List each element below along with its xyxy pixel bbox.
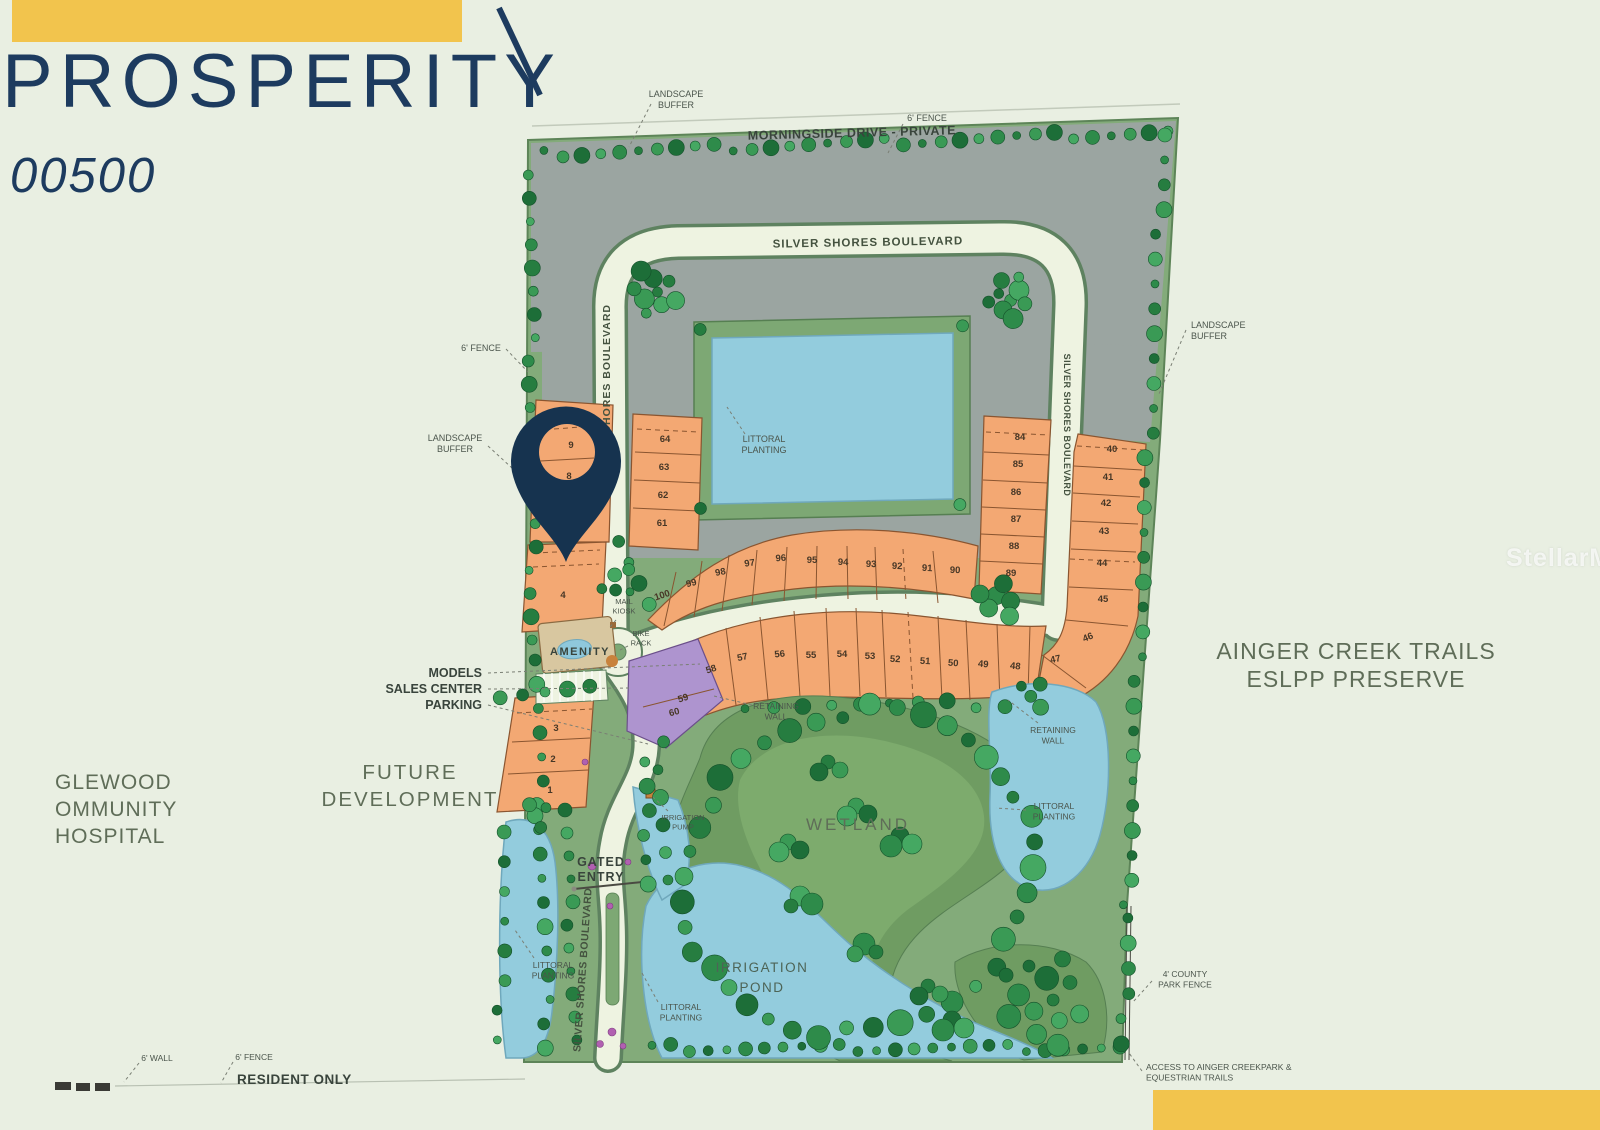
tree-icon [889, 700, 905, 716]
map-label-preserve: AINGER CREEK TRAILSESLPP PRESERVE [1216, 638, 1495, 692]
map-label-bike-rack: BIKERACK [631, 629, 652, 648]
tree-icon [670, 890, 694, 914]
tree-icon [533, 704, 543, 714]
flower-shrub-icon [625, 859, 631, 865]
tree-icon [859, 693, 881, 715]
tree-icon [493, 1036, 501, 1044]
tree-icon [1147, 427, 1159, 439]
tree-icon [1150, 404, 1158, 412]
tree-icon [561, 827, 573, 839]
map-label-access-trails: ACCESS TO AINGER CREEKPARK &EQUESTRIAN T… [1146, 1062, 1292, 1083]
tree-icon [1063, 976, 1077, 990]
tree-icon [610, 584, 622, 596]
tree-icon [538, 897, 550, 909]
tree-icon [1139, 653, 1147, 661]
tree-icon [664, 1037, 678, 1051]
map-label-models: MODELS [429, 666, 482, 680]
tree-icon [739, 1042, 753, 1056]
tree-icon [541, 803, 551, 813]
tree-icon [1025, 1002, 1043, 1020]
tree-icon [583, 679, 597, 693]
tree-icon [992, 768, 1010, 786]
lot-number-93: 93 [866, 559, 877, 570]
lot-number-1: 1 [547, 785, 553, 796]
tree-icon [1113, 1036, 1129, 1052]
tree-icon [1107, 132, 1115, 140]
tree-icon [1149, 354, 1159, 364]
map-label-littoral-planting-n: LITTORALPLANTING [741, 434, 786, 455]
tree-icon [1013, 132, 1021, 140]
tree-icon [695, 502, 707, 514]
tree-icon [928, 1043, 938, 1053]
tree-icon [1138, 602, 1148, 612]
tree-icon [529, 654, 541, 666]
tree-icon [497, 825, 511, 839]
tree-icon [1137, 501, 1151, 515]
tree-icon [546, 995, 554, 1003]
lot-number-45: 45 [1098, 594, 1109, 605]
tree-icon [863, 1017, 883, 1037]
lot-number-85: 85 [1013, 459, 1024, 470]
tree-icon [690, 141, 700, 151]
tree-icon [566, 895, 580, 909]
map-label-landscape-buffer-e: LANDSCAPEBUFFER [1191, 320, 1246, 341]
tree-icon [999, 968, 1013, 982]
tree-icon [631, 261, 651, 281]
flower-shrub-icon [620, 1043, 626, 1049]
tree-icon [1135, 574, 1151, 590]
map-label-littoral-planting-sw: LITTORALPLANTING [532, 960, 575, 981]
tree-icon [1124, 128, 1136, 140]
tree-icon [663, 875, 673, 885]
tree-icon [675, 867, 693, 885]
tree-icon [729, 147, 737, 155]
tree-icon [1151, 229, 1161, 239]
tree-icon [1027, 1024, 1047, 1044]
tree-icon [736, 994, 758, 1016]
map-label-amenity: AMENITY [550, 646, 610, 658]
tree-icon [501, 917, 509, 925]
tree-icon [769, 842, 789, 862]
tree-icon [932, 986, 948, 1002]
tree-icon [631, 575, 647, 591]
mail-kiosk-structure [610, 622, 616, 628]
lot-number-41: 41 [1103, 472, 1114, 483]
tree-icon [648, 1041, 656, 1049]
tree-icon [1033, 677, 1047, 691]
tree-icon [1126, 749, 1140, 763]
lot-number-88: 88 [1009, 541, 1020, 552]
tree-icon [542, 946, 552, 956]
tree-icon [1001, 607, 1019, 625]
tree-icon [683, 1046, 695, 1058]
lot-number-92: 92 [892, 561, 903, 573]
tree-icon [684, 845, 696, 857]
tree-icon [971, 585, 989, 603]
site-map: LANDSCAPEBUFFERMORNINGSIDE DRIVE - PRIVA… [0, 0, 1600, 1130]
map-label-landscape-buffer-nw: LANDSCAPEBUFFER [649, 89, 704, 110]
tree-icon [653, 789, 669, 805]
tree-icon [613, 535, 625, 547]
lot-number-9: 9 [568, 440, 573, 451]
lot-number-63: 63 [659, 462, 670, 473]
tree-icon [558, 803, 572, 817]
tree-icon [994, 273, 1010, 289]
lot-number-98: 98 [714, 566, 726, 579]
tree-icon [908, 1043, 920, 1055]
tree-icon [597, 584, 607, 594]
lot-number-97: 97 [744, 557, 756, 569]
tree-icon [538, 874, 546, 882]
tree-icon [663, 275, 675, 287]
tree-icon [537, 919, 553, 935]
map-label-sales-center: SALES CENTER [385, 682, 482, 696]
tree-icon [810, 763, 828, 781]
tree-icon [1147, 326, 1163, 342]
lot-number-53: 53 [865, 651, 876, 662]
tree-icon [1123, 988, 1135, 1000]
tree-icon [525, 403, 535, 413]
map-label-hospital: GLEWOODOMMUNITYHOSPITAL [55, 771, 177, 848]
tree-icon [525, 239, 537, 251]
tree-icon [1158, 128, 1172, 142]
tree-icon [1078, 1044, 1088, 1054]
tree-icon [910, 987, 928, 1005]
tree-icon [668, 140, 684, 156]
bottom-accent-bar [1153, 1090, 1600, 1130]
tree-icon [1003, 309, 1023, 329]
tree-icon [533, 847, 547, 861]
lot-number-90: 90 [950, 565, 961, 576]
lot-number-56: 56 [774, 648, 786, 660]
tree-icon [1030, 128, 1042, 140]
tree-icon [1071, 1005, 1089, 1023]
county-park-fence-line [1129, 906, 1131, 1060]
tree-icon [961, 733, 975, 747]
tree-icon [492, 1005, 502, 1015]
tree-icon [869, 945, 883, 959]
tree-icon [522, 355, 534, 367]
tree-icon [559, 681, 575, 697]
tree-icon [567, 875, 575, 883]
tree-icon [1069, 134, 1079, 144]
tree-icon [1127, 800, 1139, 812]
tree-icon [527, 308, 541, 322]
tree-icon [798, 1042, 806, 1050]
tree-icon [521, 376, 537, 392]
tree-icon [660, 847, 672, 859]
tree-icon [608, 568, 622, 582]
leader-line-county-park-fence [1133, 981, 1152, 1002]
tree-icon [596, 149, 606, 159]
tree-icon [801, 893, 823, 915]
map-label-fence-s: 6' FENCE [235, 1052, 273, 1062]
tree-icon [678, 920, 692, 934]
tree-icon [758, 736, 772, 750]
tree-icon [1014, 272, 1024, 282]
tree-icon [639, 778, 655, 794]
tree-icon [638, 829, 650, 841]
lot-number-89: 89 [1006, 568, 1017, 579]
lot-number-42: 42 [1101, 498, 1112, 509]
map-label-resident-only: RESIDENT ONLY [237, 1072, 352, 1087]
lot-number-64: 64 [660, 434, 671, 445]
tree-icon [957, 320, 969, 332]
lot-number-87: 87 [1011, 514, 1022, 525]
map-label-fence-ne: 6' FENCE [907, 113, 947, 123]
tree-icon [706, 797, 722, 813]
tree-icon [1035, 966, 1059, 990]
tree-icon [762, 1013, 774, 1025]
tree-icon [1086, 130, 1100, 144]
tree-icon [983, 296, 995, 308]
tree-icon [853, 1047, 863, 1057]
tree-icon [954, 499, 966, 511]
tree-icon [1129, 726, 1139, 736]
lot-number-96: 96 [775, 553, 786, 565]
tree-icon [525, 566, 533, 574]
tree-icon [1007, 791, 1019, 803]
tree-icon [1161, 156, 1169, 164]
tree-icon [526, 218, 534, 226]
tree-icon [741, 705, 749, 713]
tree-icon [1128, 675, 1140, 687]
lot-number-3: 3 [553, 723, 558, 734]
map-label-future-development: FUTUREDEVELOPMENT [322, 761, 499, 811]
tree-icon [531, 334, 539, 342]
tree-icon [557, 151, 569, 163]
tree-icon [778, 719, 802, 743]
tree-icon [1018, 297, 1032, 311]
map-label-gated-entry: GATEDENTRY [577, 855, 625, 884]
flower-shrub-icon [582, 759, 588, 765]
map-label-parking: PARKING [425, 698, 482, 712]
east-pond [989, 684, 1109, 891]
tree-icon [832, 762, 848, 778]
tree-icon [888, 1043, 902, 1057]
tree-icon [1022, 1048, 1030, 1056]
leader-line-fence-s [221, 1062, 233, 1083]
flower-shrub-icon [597, 1041, 604, 1048]
map-label-littoral-planting-s: LITTORALPLANTING [660, 1002, 703, 1023]
tree-icon [561, 919, 573, 931]
tree-icon [499, 975, 511, 987]
tree-icon [1156, 202, 1172, 218]
tree-icon [527, 635, 537, 645]
tree-icon [1126, 698, 1142, 714]
tree-icon [833, 1038, 845, 1050]
lot-number-84: 84 [1015, 432, 1026, 443]
tree-icon [529, 540, 543, 554]
map-label-county-park-fence: 4' COUNTYPARK FENCE [1158, 969, 1212, 990]
watermark: StellarMLS [1506, 544, 1600, 573]
tree-icon [1025, 690, 1037, 702]
tree-icon [493, 691, 507, 705]
tree-icon [1122, 962, 1136, 976]
tree-icon [641, 855, 651, 865]
tree-icon [707, 764, 733, 790]
tree-icon [524, 260, 540, 276]
lot-number-50: 50 [948, 658, 959, 670]
tree-icon [746, 143, 758, 155]
tree-icon [564, 851, 574, 861]
lot-number-86: 86 [1011, 487, 1022, 498]
lot-number-43: 43 [1099, 526, 1110, 537]
lot-number-44: 44 [1097, 558, 1108, 569]
tree-icon [807, 713, 825, 731]
tree-icon [963, 1039, 977, 1053]
tree-icon [983, 1039, 995, 1051]
tree-icon [498, 944, 512, 958]
flower-shrub-icon [608, 1028, 616, 1036]
tree-icon [642, 597, 656, 611]
tree-icon [778, 1042, 788, 1052]
tree-icon [613, 145, 627, 159]
tree-icon [523, 609, 539, 625]
tree-icon [1127, 851, 1137, 861]
tree-icon [694, 323, 706, 335]
leader-line-wall-sw [124, 1063, 139, 1082]
tree-icon [974, 134, 984, 144]
tree-icon [1051, 1013, 1067, 1029]
tree-icon [523, 798, 537, 812]
tree-icon [827, 700, 837, 710]
tree-icon [1140, 528, 1148, 536]
tree-icon [791, 841, 809, 859]
tree-icon [837, 712, 849, 724]
tree-icon [758, 1042, 770, 1054]
tree-icon [522, 191, 536, 205]
tree-icon [538, 1018, 550, 1030]
tree-icon [896, 138, 910, 152]
lot-number-40: 40 [1107, 444, 1118, 455]
tree-icon [524, 588, 536, 600]
tree-icon [1027, 834, 1043, 850]
lot-number-4: 4 [560, 590, 566, 601]
tree-icon [1055, 951, 1071, 967]
tree-icon [1119, 901, 1127, 909]
tree-icon [1141, 125, 1157, 141]
tree-icon [948, 1043, 956, 1051]
tree-icon [1020, 855, 1046, 881]
lot-number-61: 61 [657, 518, 668, 529]
tree-icon [523, 170, 533, 180]
tree-icon [723, 1046, 731, 1054]
lot-number-52: 52 [890, 654, 901, 666]
tree-icon [1047, 994, 1059, 1006]
tree-icon [707, 137, 721, 151]
lot-number-2: 2 [550, 754, 555, 765]
tree-icon [574, 147, 590, 163]
tree-icon [807, 1026, 831, 1050]
lot-number-54: 54 [837, 649, 848, 660]
tree-icon [640, 757, 650, 767]
tree-icon [642, 804, 656, 818]
map-label-fence-w: 6' FENCE [461, 343, 501, 353]
tree-icon [528, 286, 538, 296]
tree-icon [887, 1010, 913, 1036]
tree-icon [1116, 1014, 1126, 1024]
tree-icon [971, 703, 981, 713]
tree-icon [626, 588, 634, 596]
map-label-littoral-planting-e: LITTORALPLANTING [1033, 801, 1076, 822]
tree-icon [1129, 777, 1137, 785]
tree-icon [640, 876, 656, 892]
leader-line-landscape-buffer-w [488, 446, 512, 468]
tree-icon [1017, 883, 1037, 903]
tree-icon [1016, 681, 1026, 691]
tree-icon [919, 1006, 935, 1022]
tree-icon [498, 856, 510, 868]
map-label-mail-kiosk: MAILKIOSK [613, 597, 636, 616]
tree-icon [840, 1021, 854, 1035]
tree-icon [731, 749, 751, 769]
tree-icon [847, 946, 863, 962]
lot-number-62: 62 [658, 490, 669, 501]
lot-number-47: 47 [1049, 653, 1062, 666]
tree-icon [1010, 910, 1024, 924]
tree-icon [932, 1019, 954, 1041]
tree-icon [873, 1047, 881, 1055]
tree-icon [902, 834, 922, 854]
map-label-landscape-buffer-w: LANDSCAPEBUFFER [428, 433, 483, 454]
tree-icon [627, 282, 641, 296]
tree-icon [1140, 478, 1150, 488]
tree-icon [937, 716, 957, 736]
tree-icon [991, 927, 1015, 951]
lot-number-51: 51 [920, 656, 932, 668]
tree-icon [653, 765, 663, 775]
lot-number-95: 95 [807, 555, 818, 566]
tree-icon [1158, 179, 1170, 191]
tree-icon [1147, 377, 1161, 391]
tree-icon [1003, 1039, 1013, 1049]
tree-icon [997, 1004, 1021, 1028]
tree-icon [785, 141, 795, 151]
tree-icon [1008, 984, 1030, 1006]
tree-icon [1047, 1034, 1069, 1056]
tree-icon [783, 1021, 801, 1039]
tree-icon [641, 308, 651, 318]
tree-icon [537, 1040, 553, 1056]
gate-post [572, 887, 577, 892]
tree-icon [1151, 280, 1159, 288]
tree-icon [635, 147, 643, 155]
tree-icon [651, 143, 663, 155]
top-accent-bar [12, 0, 462, 42]
lot-number-94: 94 [838, 557, 850, 568]
tree-icon [703, 1046, 713, 1056]
lot-number-57: 57 [736, 651, 749, 664]
lot-number-49: 49 [977, 659, 988, 671]
tree-icon [540, 146, 548, 154]
north-pond [712, 333, 953, 504]
tree-icon [998, 700, 1012, 714]
tree-icon [994, 289, 1004, 299]
tree-icon [533, 726, 547, 740]
tree-icon [991, 130, 1005, 144]
tree-icon [1123, 913, 1133, 923]
tree-icon [970, 980, 982, 992]
lot-id-subtitle: 00500 [10, 148, 156, 204]
tree-icon [1046, 124, 1062, 140]
map-label-wall-sw: 6' WALL [141, 1053, 173, 1063]
map-label-wetland: WETLAND [806, 815, 910, 834]
entry-median-island [606, 893, 619, 1005]
tree-icon [1097, 1044, 1105, 1052]
tree-icon [784, 899, 798, 913]
tree-icon [1138, 551, 1150, 563]
